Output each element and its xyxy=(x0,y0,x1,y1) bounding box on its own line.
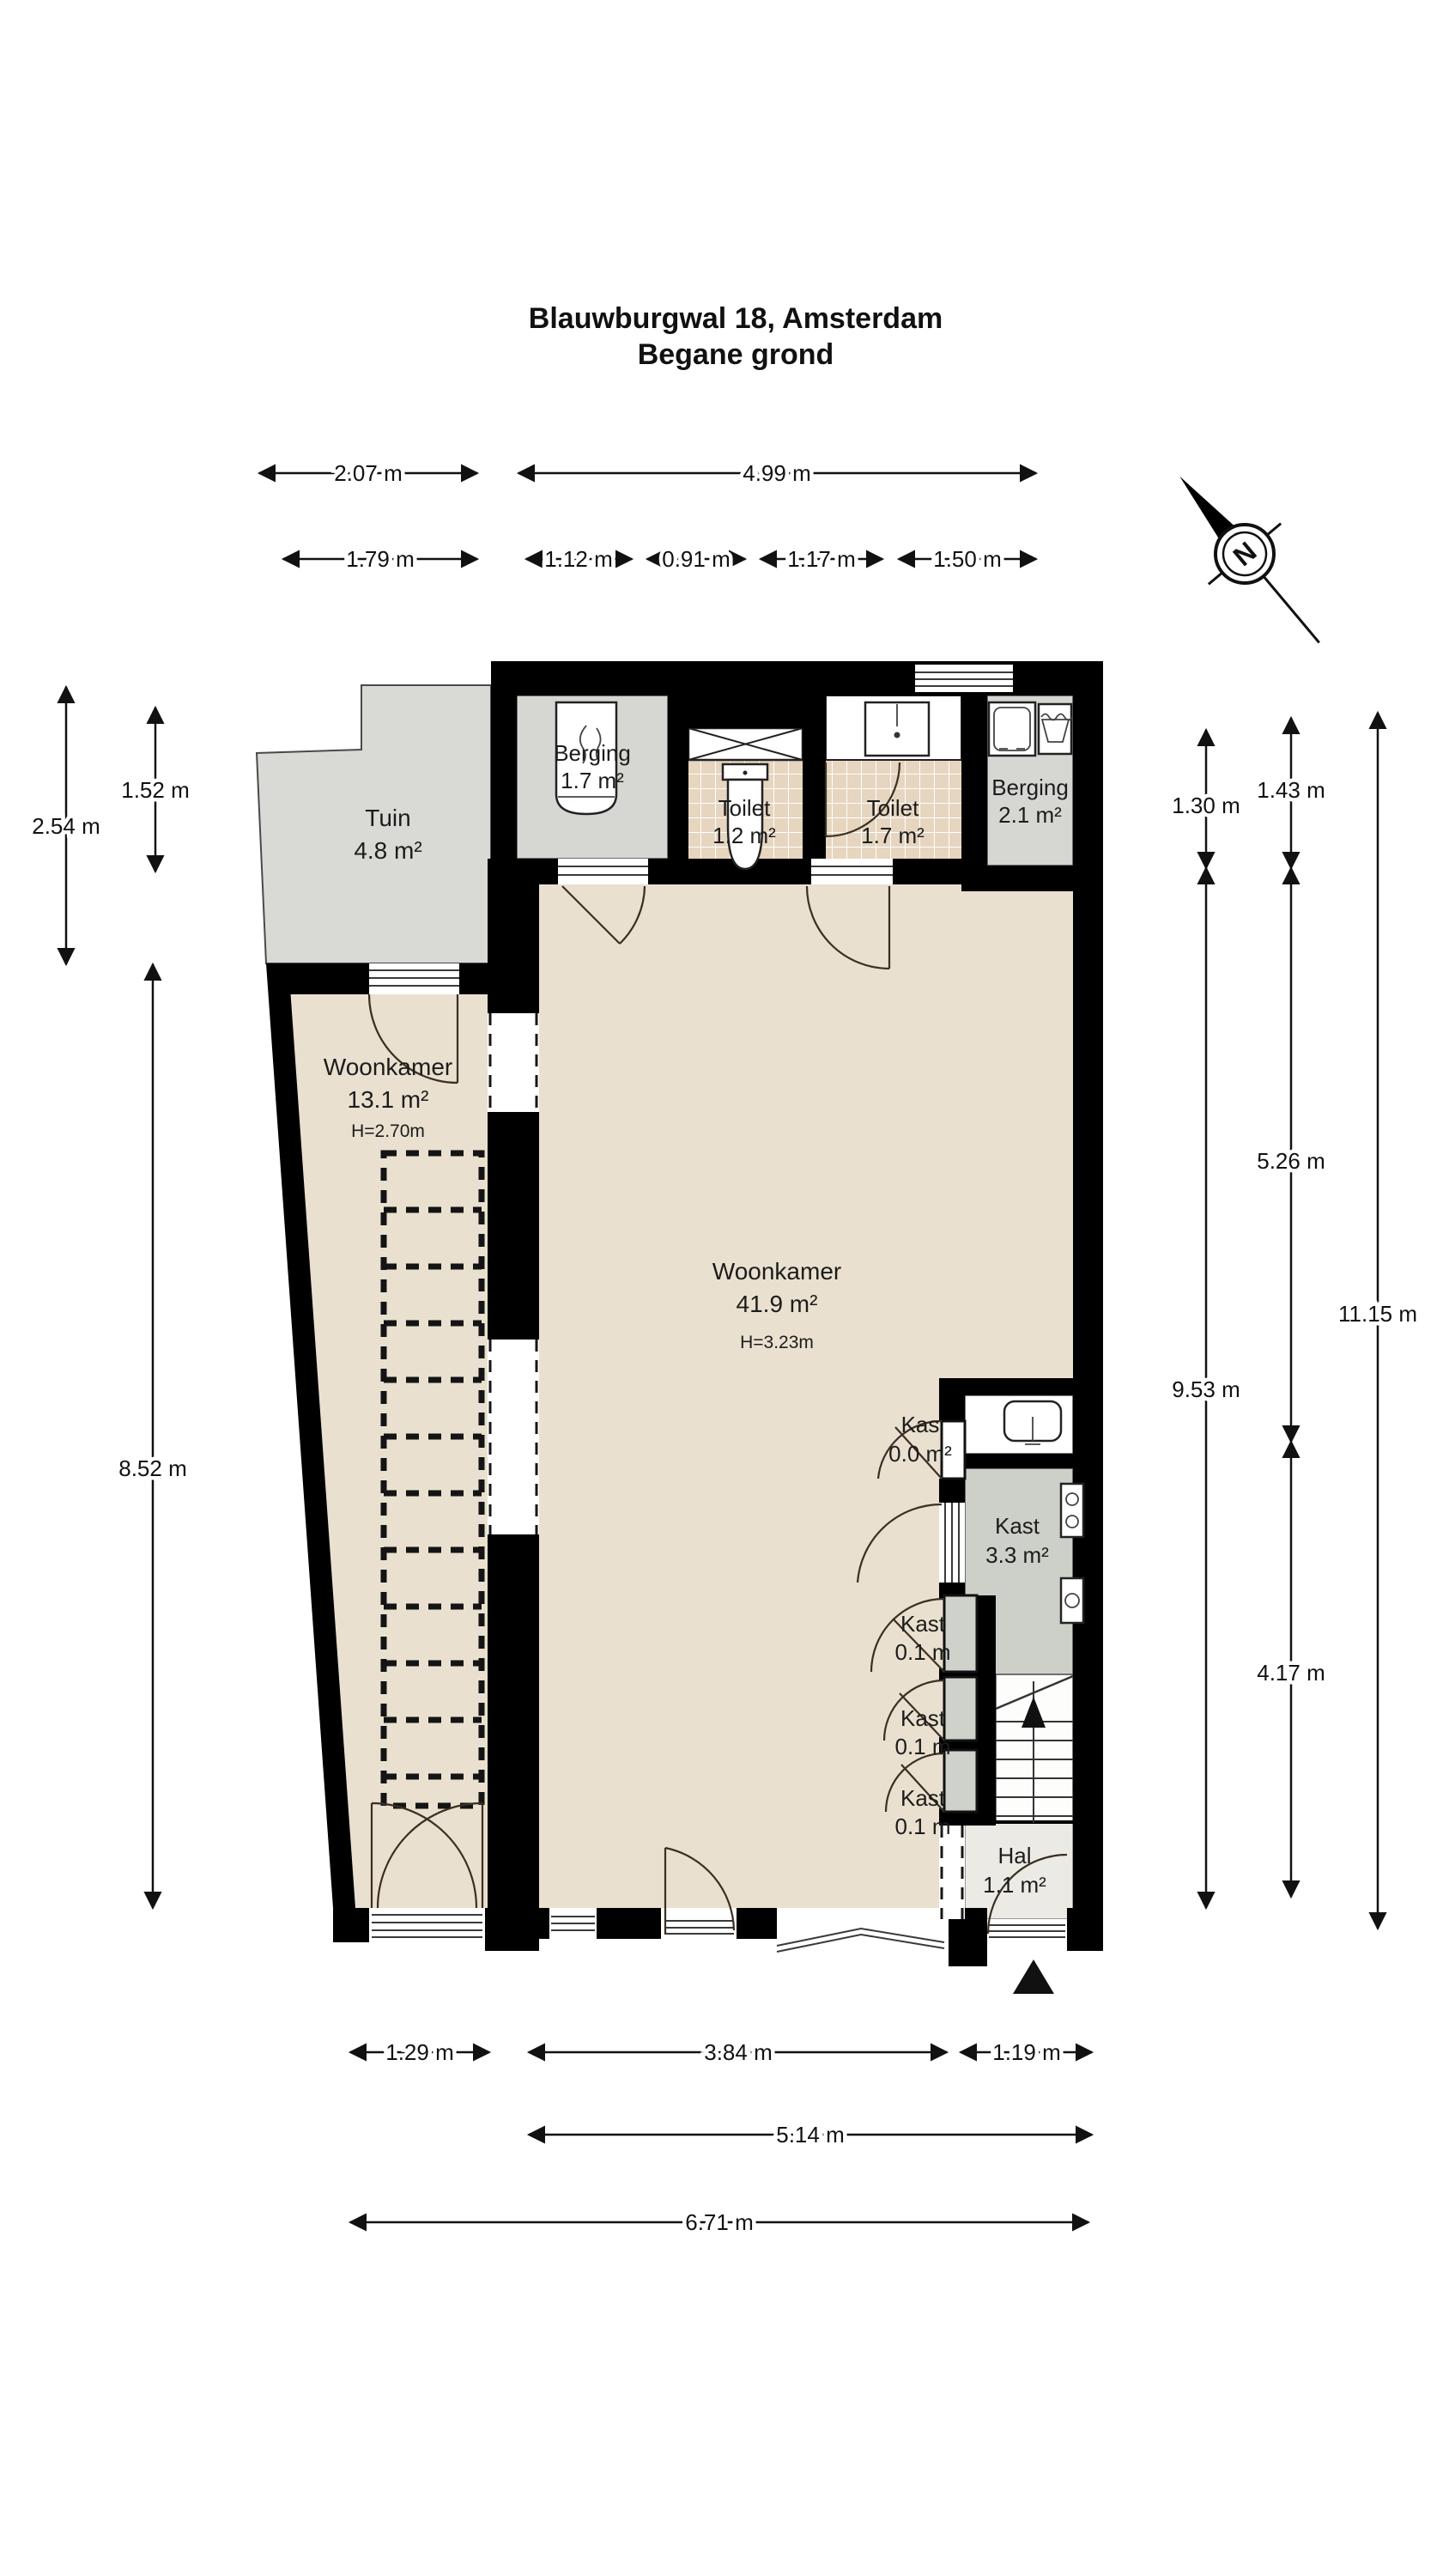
dim-left-2-54: 2.54 m xyxy=(32,813,100,839)
label-kast01b-area: 0.1 m xyxy=(894,1734,950,1759)
dim-bottom-6-71: 6.71 m xyxy=(685,2209,754,2235)
label-woonkamer2-area: 41.9 m² xyxy=(737,1291,818,1317)
label-berging2-area: 2.1 m² xyxy=(998,802,1062,828)
label-berging1: Berging xyxy=(554,740,631,766)
dim-right-11-15: 11.15 m xyxy=(1338,1301,1417,1327)
label-toilet2: Toilet xyxy=(867,795,919,821)
page-title: Blauwburgwal 18, Amsterdam xyxy=(529,302,943,335)
dim-right-1-30: 1.30 m xyxy=(1172,793,1240,818)
sink-icon xyxy=(865,702,929,756)
label-toilet2-area: 1.7 m² xyxy=(861,823,925,848)
dim-right-1-43: 1.43 m xyxy=(1257,777,1325,803)
page-subtitle: Begane grond xyxy=(638,338,834,371)
dim-top-1-50: 1.50 m xyxy=(933,546,1002,572)
basin-icon xyxy=(1004,1401,1061,1444)
dim-top-4-99: 4.99 m xyxy=(743,460,811,486)
entrance-marker-icon xyxy=(1013,1959,1054,1994)
label-kast01b: Kast xyxy=(900,1705,946,1731)
dim-bottom-1-29: 1.29 m xyxy=(385,2039,454,2065)
label-toilet1: Toilet xyxy=(718,795,771,821)
label-kast01c-area: 0.1 m xyxy=(894,1814,950,1839)
dim-right-9-53: 9.53 m xyxy=(1172,1376,1240,1402)
label-woonkamer1: Woonkamer xyxy=(324,1054,452,1080)
label-kast33: Kast xyxy=(995,1513,1040,1539)
label-hal: Hal xyxy=(997,1843,1031,1868)
dim-top-1-79: 1.79 m xyxy=(346,546,415,572)
dim-bottom-3-84: 3.84 m xyxy=(704,2039,773,2065)
vent-window xyxy=(915,665,1013,692)
dim-top-1-17: 1.17 m xyxy=(787,546,856,572)
dim-left-8-52: 8.52 m xyxy=(118,1455,187,1481)
label-berging2: Berging xyxy=(991,775,1069,800)
label-berging1-area: 1.7 m² xyxy=(561,768,624,793)
label-toilet1-area: 1.2 m² xyxy=(712,823,776,848)
laundry-tub-icon xyxy=(1039,704,1072,754)
dim-top-0-91: 0.91 m xyxy=(662,546,731,572)
washing-machine-icon xyxy=(989,702,1035,756)
label-tuin-area: 4.8 m² xyxy=(354,837,421,864)
dim-bottom-1-19: 1.19 m xyxy=(992,2039,1061,2065)
label-woonkamer2: Woonkamer xyxy=(712,1258,841,1285)
label-kas-area: 0.0 m² xyxy=(888,1441,952,1467)
dim-right-4-17: 4.17 m xyxy=(1257,1660,1325,1686)
label-kas: Kas xyxy=(901,1412,940,1437)
floorplan-drawing: Blauwburgwal 18, Amsterdam Begane grond xyxy=(0,0,1449,2576)
label-woonkamer1-height: H=2.70m xyxy=(351,1121,425,1141)
label-kast01c: Kast xyxy=(900,1785,946,1811)
label-hal-area: 1.1 m² xyxy=(983,1872,1046,1898)
dim-top-2-07: 2.07 m xyxy=(334,460,403,486)
label-kast01a-area: 0.1 m xyxy=(894,1639,950,1665)
dim-left-1-52: 1.52 m xyxy=(121,777,190,803)
dim-right-5-26: 5.26 m xyxy=(1257,1148,1325,1174)
room-kast01b-floor xyxy=(944,1677,977,1741)
label-kast33-area: 3.3 m² xyxy=(985,1542,1049,1568)
label-woonkamer2-height: H=3.23m xyxy=(740,1333,814,1352)
label-kast01a: Kast xyxy=(900,1611,946,1637)
compass-icon: N xyxy=(1143,446,1355,673)
dim-bottom-5-14: 5.14 m xyxy=(776,2122,845,2148)
dim-top-1-12: 1.12 m xyxy=(544,546,613,572)
label-tuin: Tuin xyxy=(365,805,410,831)
floorplan-page: Blauwburgwal 18, Amsterdam Begane grond xyxy=(0,0,1449,2576)
label-woonkamer1-area: 13.1 m² xyxy=(348,1086,429,1113)
sliding-door xyxy=(777,1908,949,1952)
